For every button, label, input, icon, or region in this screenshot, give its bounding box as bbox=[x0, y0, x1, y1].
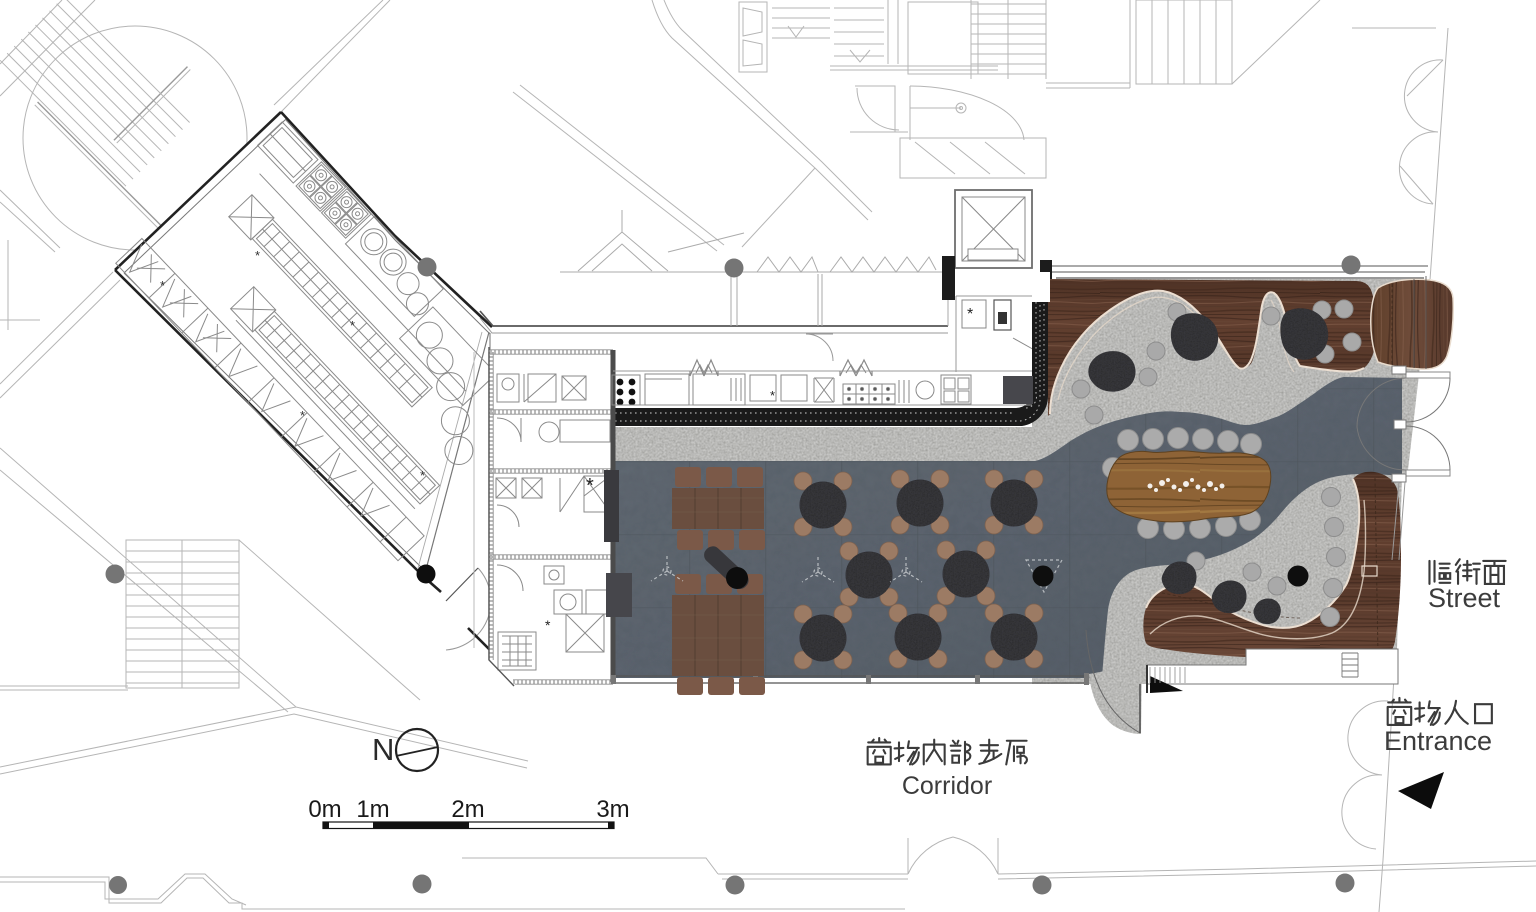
svg-text:0m: 0m bbox=[308, 796, 341, 823]
svg-text:2m: 2m bbox=[451, 796, 484, 823]
svg-text:3m: 3m bbox=[596, 796, 629, 823]
svg-text:1m: 1m bbox=[356, 796, 389, 823]
svg-text:Entrance: Entrance bbox=[1384, 726, 1492, 756]
svg-text:*: * bbox=[420, 468, 425, 483]
svg-text:N: N bbox=[372, 732, 394, 767]
svg-text:Street: Street bbox=[1428, 583, 1501, 613]
svg-text:*: * bbox=[300, 408, 305, 423]
svg-text:*: * bbox=[770, 388, 775, 403]
svg-text:*: * bbox=[160, 278, 165, 293]
svg-text:*: * bbox=[967, 306, 973, 323]
svg-text:*: * bbox=[545, 617, 551, 633]
svg-text:*: * bbox=[586, 475, 594, 497]
svg-text:Corridor: Corridor bbox=[902, 772, 992, 800]
svg-text:*: * bbox=[350, 318, 355, 333]
svg-text:*: * bbox=[255, 248, 260, 263]
